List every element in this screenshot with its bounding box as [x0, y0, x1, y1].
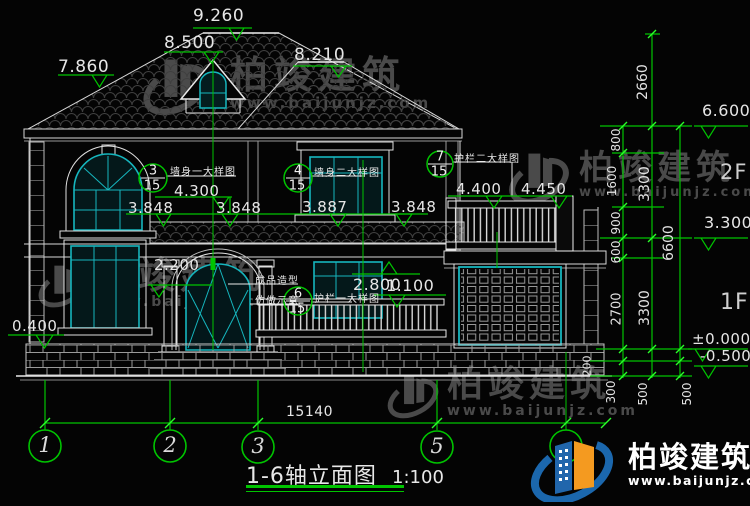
elevation-mark-7860: 7.860	[58, 57, 109, 77]
window-mark-3848c: 3.848	[391, 198, 436, 216]
vdim-800: 800	[609, 129, 623, 152]
axis-bubble-2: 2	[163, 433, 176, 457]
window-mark-4300: 4.300	[174, 182, 219, 200]
brand-logo-text: 柏竣建筑	[628, 443, 750, 472]
vdim-200: 200	[581, 356, 594, 377]
vdim-500b: 500	[680, 383, 694, 406]
vdim-500a: 500	[636, 383, 650, 406]
elevation-mark-1100: 1.100	[386, 276, 434, 295]
vdim-300: 300	[604, 381, 618, 404]
vdim-2700: 2700	[610, 292, 625, 325]
window-mark-3848b: 3.848	[216, 199, 261, 217]
callout-rail1-label: 护栏一大样图	[314, 290, 380, 305]
note-line1: 成品造型	[255, 272, 299, 287]
window-mark-3887: 3.887	[302, 198, 347, 216]
callout-rail2-label: 护栏二大样图	[454, 150, 520, 165]
vdim-600: 600	[609, 241, 623, 264]
window-mark-4450: 4.450	[521, 180, 566, 198]
callout-wall1-label: 墙身一大样图	[170, 163, 236, 178]
vdim-6600: 6600	[661, 225, 677, 261]
callout-wall1-sheet: 15	[144, 179, 161, 194]
note-line2: 仿做示意	[255, 292, 299, 307]
vdim-3300b: 3300	[637, 290, 653, 326]
callout-rail2-num: 7	[436, 150, 444, 165]
title-underline	[246, 485, 404, 488]
cad-elevation-screenshot: 柏竣建筑 www.baijunjz.com 柏竣建筑 www.baijunjz.…	[0, 0, 750, 506]
vdim-900: 900	[609, 212, 623, 235]
window-mark-4400: 4.400	[456, 180, 501, 198]
elevation-mark-0000: ±0.000	[692, 330, 750, 348]
elevation-mark-8210: 8.210	[294, 45, 345, 65]
window-mark-3848a: 3.848	[128, 199, 173, 217]
elevation-mark-neg0500: -0.500	[700, 347, 750, 365]
elevation-mark-6600: 6.600	[702, 101, 750, 120]
elevation-mark-0400: 0.400	[12, 317, 57, 335]
callout-wall2-label: 墙身二大样图	[314, 164, 380, 179]
vdim-1600: 1600	[605, 166, 619, 197]
overall-width-dim: 15140	[286, 404, 333, 420]
axis-bubble-3: 3	[251, 434, 264, 458]
floor-label-1f: 1F	[720, 290, 749, 315]
elevation-mark-8500: 8.500	[164, 33, 215, 53]
axis-bubble-5: 5	[430, 434, 443, 458]
callout-rail2-sheet: 15	[431, 165, 448, 180]
vdim-2660: 2660	[635, 64, 651, 100]
floor-label-2f: 2F	[720, 160, 747, 184]
callout-wall2-sheet: 15	[289, 179, 306, 194]
title-underline-thin	[246, 491, 404, 492]
callout-wall1-num: 3	[149, 164, 157, 179]
elevation-mark-2200: 2.200	[154, 256, 199, 274]
axis-bubble-1: 1	[38, 433, 51, 457]
brand-logo-icon	[528, 430, 620, 502]
callout-wall2-num: 4	[294, 164, 302, 179]
elevation-mark-9260: 9.260	[193, 6, 244, 26]
elevation-mark-3300: 3.300	[704, 213, 750, 232]
brand-logo: 柏竣建筑 www.baijunjz.com	[528, 430, 750, 502]
vdim-3300a: 3300	[637, 166, 653, 202]
brand-logo-url: www.baijunjz.com	[628, 472, 750, 490]
